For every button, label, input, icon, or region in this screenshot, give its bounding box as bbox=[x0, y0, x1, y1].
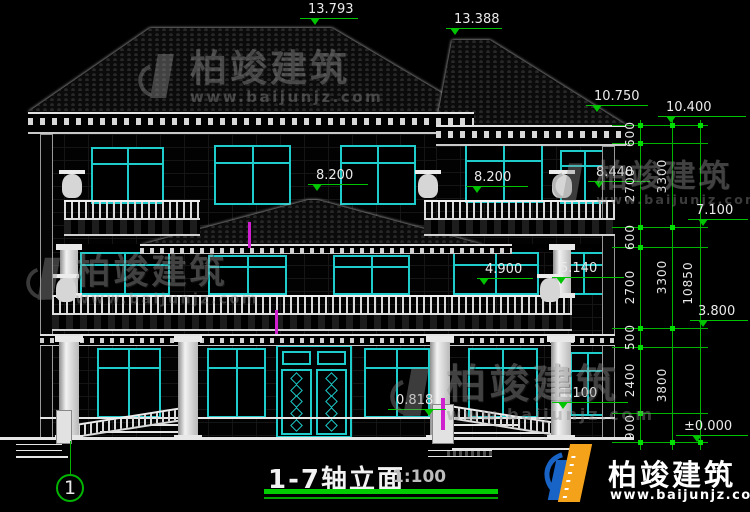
door-transom-left bbox=[282, 351, 311, 365]
stair-newel-post-left bbox=[56, 410, 72, 444]
door-transom-right bbox=[317, 351, 346, 365]
footer-detail-line bbox=[428, 456, 492, 457]
brand-logo-icon bbox=[544, 444, 608, 508]
porch-eave-band bbox=[140, 244, 512, 254]
dim-value: 3300 bbox=[655, 255, 669, 299]
corner-pilaster-left bbox=[40, 134, 53, 440]
dim-value: 3800 bbox=[655, 363, 669, 407]
window-1f-1 bbox=[97, 348, 161, 418]
window-1f-2 bbox=[207, 348, 266, 418]
elevation-marker-0818: 0.818 bbox=[388, 393, 446, 410]
dim-tick bbox=[638, 345, 643, 350]
eave-cornice-right bbox=[436, 125, 626, 146]
elevation-marker-ridge-left: 13.793 bbox=[300, 2, 358, 19]
elevation-marker-rail-3f: 8.200 bbox=[466, 170, 528, 187]
left-ground-line bbox=[16, 456, 68, 458]
left-step-profile bbox=[16, 450, 62, 451]
elevation-value: 1.100 bbox=[552, 386, 599, 402]
urn-finial-3f-mid bbox=[418, 174, 438, 198]
window-2f-1 bbox=[80, 252, 170, 295]
entry-double-door bbox=[276, 345, 352, 438]
dim-tick bbox=[638, 225, 643, 230]
dim-tick bbox=[638, 411, 643, 416]
urn-finial-3f-right bbox=[552, 174, 572, 198]
elevation-marker-eave-left: 10.750 bbox=[586, 89, 648, 106]
balcony-railing-3f-left bbox=[64, 200, 200, 236]
door-leaf-right bbox=[316, 369, 347, 435]
elevation-value: 5.140 bbox=[552, 261, 599, 277]
dim-tick bbox=[638, 141, 643, 146]
dim-value: 10850 bbox=[681, 253, 695, 313]
urn-finial-3f-left bbox=[62, 174, 82, 198]
drawing-scale: 1:100 bbox=[392, 467, 446, 487]
axis-leader-line bbox=[70, 441, 71, 474]
dim-value: 600 bbox=[623, 215, 637, 259]
elevation-value: ±0.000 bbox=[676, 419, 734, 435]
dimension-chain-line bbox=[700, 120, 701, 450]
dim-value: 600 bbox=[623, 112, 637, 156]
column-1f-2 bbox=[178, 342, 198, 438]
ground-line bbox=[0, 437, 634, 440]
urn-finial-2f-left bbox=[56, 278, 76, 302]
dim-tick bbox=[638, 326, 643, 331]
door-leaf-left bbox=[281, 369, 312, 435]
elevation-marker-5140: 5.140 bbox=[552, 261, 624, 278]
dim-tick bbox=[698, 123, 703, 128]
dim-tick bbox=[638, 245, 643, 250]
elevation-value: 13.793 bbox=[300, 2, 356, 18]
dim-value: 900 bbox=[623, 405, 637, 449]
window-1f-4 bbox=[468, 348, 538, 418]
eave-cornice-left bbox=[28, 112, 474, 134]
dim-value: 3300 bbox=[655, 154, 669, 198]
elevation-value: 8.200 bbox=[308, 168, 355, 184]
title-underline-thick bbox=[264, 489, 498, 494]
cad-elevation-drawing: 13.793 13.388 10.750 10.400 8.440 8.200 … bbox=[0, 0, 750, 512]
title-underline-thin bbox=[264, 497, 498, 499]
elevation-value: 10.400 bbox=[658, 100, 714, 116]
elevation-marker-4900: 4.900 bbox=[477, 262, 533, 279]
main-roof-left bbox=[28, 26, 474, 114]
dim-value: 500 bbox=[623, 315, 637, 359]
elevation-value: 7.100 bbox=[688, 203, 735, 219]
dim-tick bbox=[638, 123, 643, 128]
second-floor-band bbox=[40, 334, 615, 346]
window-3f-2 bbox=[214, 145, 291, 205]
dim-tick bbox=[670, 225, 675, 230]
balcony-railing-3f-right bbox=[424, 200, 615, 236]
elevation-marker-1100: 1.100 bbox=[552, 386, 628, 403]
elevation-value: 10.750 bbox=[586, 89, 642, 105]
window-3f-1 bbox=[91, 147, 164, 204]
elevation-marker-porch-ridge: 8.200 bbox=[308, 168, 368, 185]
window-2f-3 bbox=[333, 255, 410, 295]
magenta-marker bbox=[248, 222, 251, 248]
axis-bubble-1: 1 bbox=[56, 474, 84, 502]
dim-value: 2400 bbox=[623, 358, 637, 402]
elevation-marker-parapet: 8.440 bbox=[588, 165, 650, 182]
elevation-marker-ground: ±0.000 bbox=[676, 419, 748, 436]
balcony-railing-2f bbox=[52, 295, 572, 331]
dimension-chain-line bbox=[672, 120, 673, 450]
magenta-marker bbox=[275, 310, 278, 334]
left-step-profile bbox=[16, 444, 62, 445]
dim-tick bbox=[670, 440, 675, 445]
footer-dash-strip bbox=[447, 451, 492, 456]
dim-value: 2700 bbox=[623, 163, 637, 207]
elevation-value: 4.900 bbox=[477, 262, 524, 278]
elevation-value: 13.388 bbox=[446, 12, 502, 28]
elevation-marker-3800: 3.800 bbox=[690, 304, 748, 321]
dim-value: 2700 bbox=[623, 265, 637, 309]
window-2f-2 bbox=[208, 255, 287, 295]
window-1f-5 bbox=[570, 352, 606, 416]
dim-tick bbox=[670, 326, 675, 331]
elevation-marker-ridge-right: 13.388 bbox=[446, 12, 502, 29]
elevation-marker-eave-right: 10.400 bbox=[658, 100, 746, 117]
elevation-value: 8.200 bbox=[466, 170, 513, 186]
brand-logo-url: www.baijunjz.com bbox=[610, 488, 750, 503]
elevation-marker-7100: 7.100 bbox=[688, 203, 748, 220]
elevation-value: 3.800 bbox=[690, 304, 737, 320]
dim-tick bbox=[638, 440, 643, 445]
elevation-value: 0.818 bbox=[388, 393, 435, 409]
